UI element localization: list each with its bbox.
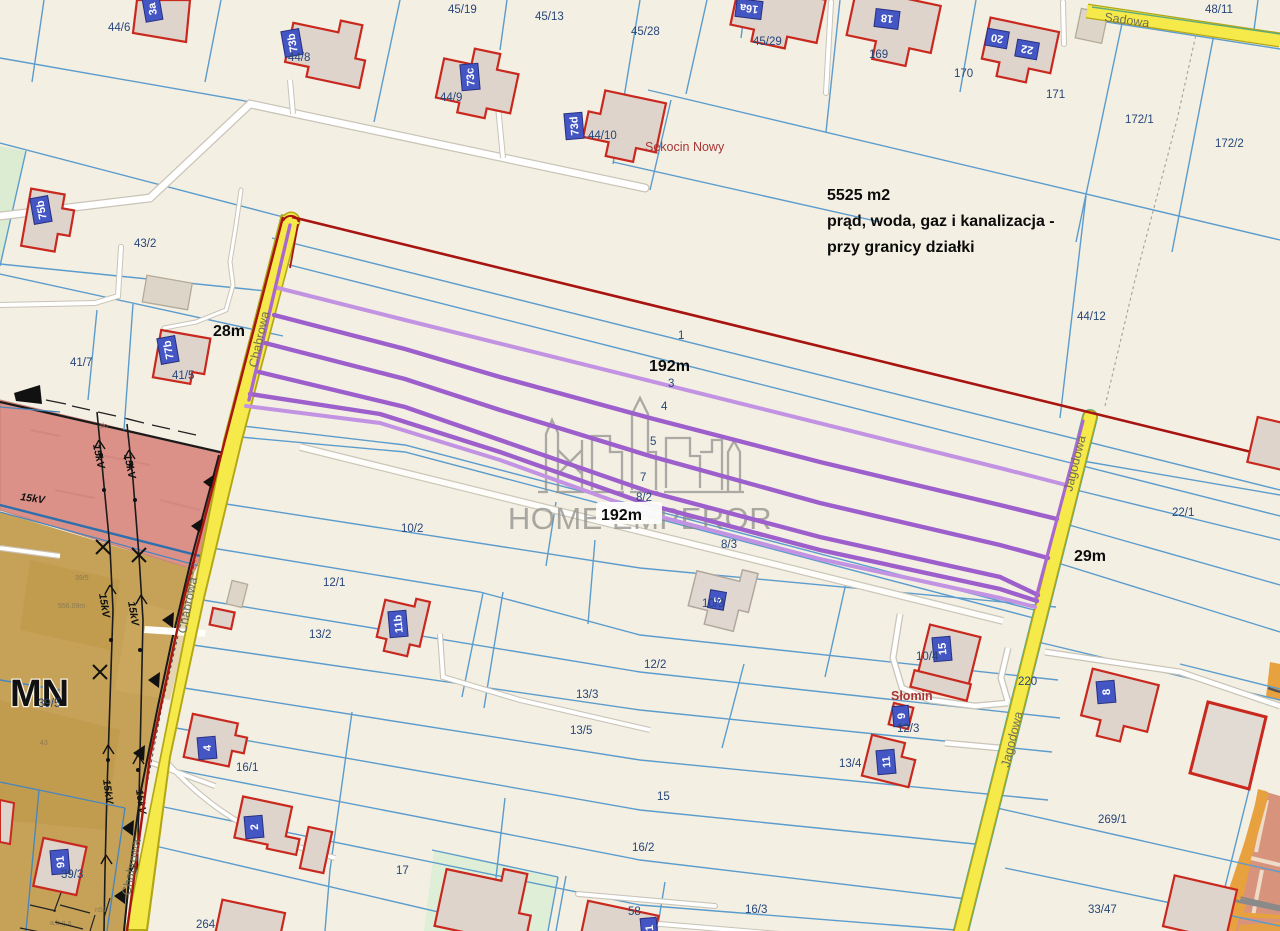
svg-text:48/11: 48/11 (1205, 4, 1233, 16)
svg-text:16/3: 16/3 (745, 904, 767, 916)
svg-text:13/3: 13/3 (576, 689, 598, 701)
svg-text:20: 20 (990, 31, 1004, 45)
svg-text:22: 22 (1020, 42, 1034, 56)
svg-text:33/47: 33/47 (1088, 904, 1117, 916)
svg-text:10/3: 10/3 (702, 598, 724, 610)
svg-text:45/29: 45/29 (753, 36, 782, 48)
svg-text:28m: 28m (213, 323, 245, 340)
svg-text:1: 1 (644, 924, 656, 931)
svg-text:192m: 192m (649, 358, 690, 375)
svg-text:44/12: 44/12 (1077, 311, 1106, 323)
svg-text:11b: 11b (392, 614, 406, 634)
svg-text:91: 91 (54, 855, 67, 868)
svg-text:3: 3 (668, 378, 674, 390)
svg-text:269/1: 269/1 (1098, 814, 1127, 826)
svg-text:2: 2 (249, 823, 261, 830)
svg-text:171: 171 (1046, 89, 1065, 101)
svg-text:16/1: 16/1 (236, 762, 258, 774)
svg-text:11: 11 (881, 756, 894, 769)
svg-text:1: 1 (678, 330, 684, 342)
svg-text:16/2: 16/2 (632, 842, 654, 854)
svg-text:556.09m: 556.09m (58, 603, 85, 610)
svg-text:39/5: 39/5 (75, 575, 89, 582)
svg-text:9: 9 (896, 712, 908, 719)
svg-text:prąd, woda, gaz i kanalizacja: prąd, woda, gaz i kanalizacja - (827, 213, 1055, 230)
svg-text:22/1: 22/1 (1172, 507, 1194, 519)
svg-text:8/3: 8/3 (721, 539, 737, 551)
svg-text:43/2: 43/2 (134, 238, 156, 250)
svg-text:44/10: 44/10 (588, 130, 617, 142)
svg-text:8: 8 (1101, 688, 1113, 695)
svg-text:18: 18 (880, 11, 894, 24)
svg-text:43: 43 (40, 740, 48, 747)
svg-text:44/8: 44/8 (288, 52, 310, 64)
svg-text:13/4: 13/4 (839, 758, 862, 770)
svg-text:264: 264 (196, 919, 216, 931)
svg-text:45/19: 45/19 (448, 4, 477, 16)
svg-text:do: do (100, 423, 108, 430)
svg-text:12/2: 12/2 (644, 659, 666, 671)
svg-text:4: 4 (661, 401, 668, 413)
svg-text:73d: 73d (568, 116, 582, 136)
svg-text:przy granicy działki: przy granicy działki (827, 239, 975, 256)
svg-text:15: 15 (936, 642, 949, 655)
svg-text:45/13: 45/13 (535, 11, 564, 23)
svg-text:5: 5 (650, 436, 656, 448)
svg-text:44/9: 44/9 (440, 92, 462, 104)
svg-text:17: 17 (396, 865, 409, 877)
svg-text:45/28: 45/28 (631, 26, 660, 38)
svg-text:73c: 73c (464, 67, 478, 86)
svg-text:10/2: 10/2 (401, 523, 423, 535)
svg-text:44/6: 44/6 (108, 22, 130, 34)
svg-text:172/1: 172/1 (1125, 114, 1154, 126)
svg-text:58: 58 (628, 906, 641, 918)
svg-text:39/3: 39/3 (61, 869, 83, 881)
svg-text:170: 170 (954, 68, 973, 80)
svg-text:220: 220 (1018, 676, 1037, 688)
svg-text:41/7: 41/7 (70, 357, 92, 369)
svg-text:29m: 29m (1074, 548, 1106, 565)
svg-text:13/2: 13/2 (309, 629, 331, 641)
svg-text:Sękocin Nowy: Sękocin Nowy (645, 140, 725, 154)
svg-text:10/4: 10/4 (916, 651, 939, 663)
svg-text:12/3: 12/3 (897, 723, 919, 735)
svg-text:15: 15 (657, 791, 670, 803)
svg-text:39/5: 39/5 (38, 698, 60, 710)
svg-text:13/5: 13/5 (570, 725, 592, 737)
svg-text:16a: 16a (738, 1, 759, 15)
svg-text:12/1: 12/1 (323, 577, 345, 589)
svg-text:192m: 192m (601, 507, 642, 524)
svg-text:172/2: 172/2 (1215, 138, 1244, 150)
svg-text:7: 7 (640, 472, 646, 484)
svg-text:5525 m2: 5525 m2 (827, 187, 890, 204)
svg-text:169: 169 (869, 49, 888, 61)
svg-text:41/5: 41/5 (172, 370, 194, 382)
svg-text:Słomin: Słomin (891, 689, 933, 703)
